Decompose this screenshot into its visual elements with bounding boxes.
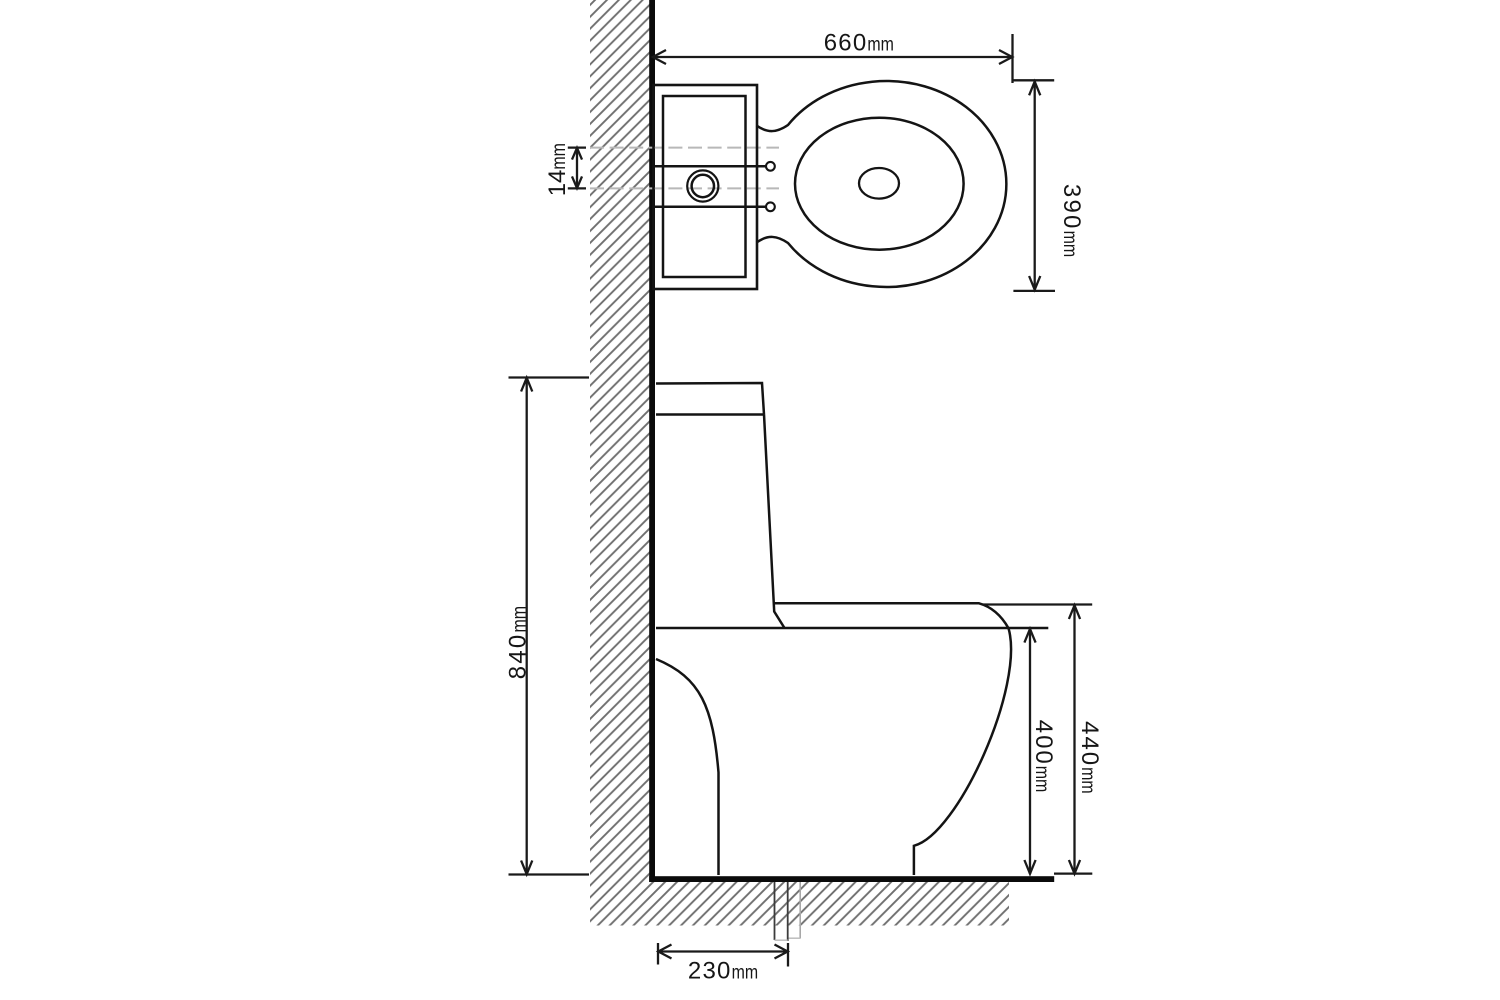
svg-text:230mm: 230mm — [688, 958, 758, 985]
svg-text:390mm: 390mm — [1058, 184, 1085, 257]
svg-text:400mm: 400mm — [1030, 720, 1057, 792]
svg-text:840mm: 840mm — [505, 606, 532, 679]
svg-text:440mm: 440mm — [1076, 721, 1103, 793]
svg-text:660mm: 660mm — [824, 30, 894, 57]
svg-text:14mm: 14mm — [544, 143, 571, 196]
